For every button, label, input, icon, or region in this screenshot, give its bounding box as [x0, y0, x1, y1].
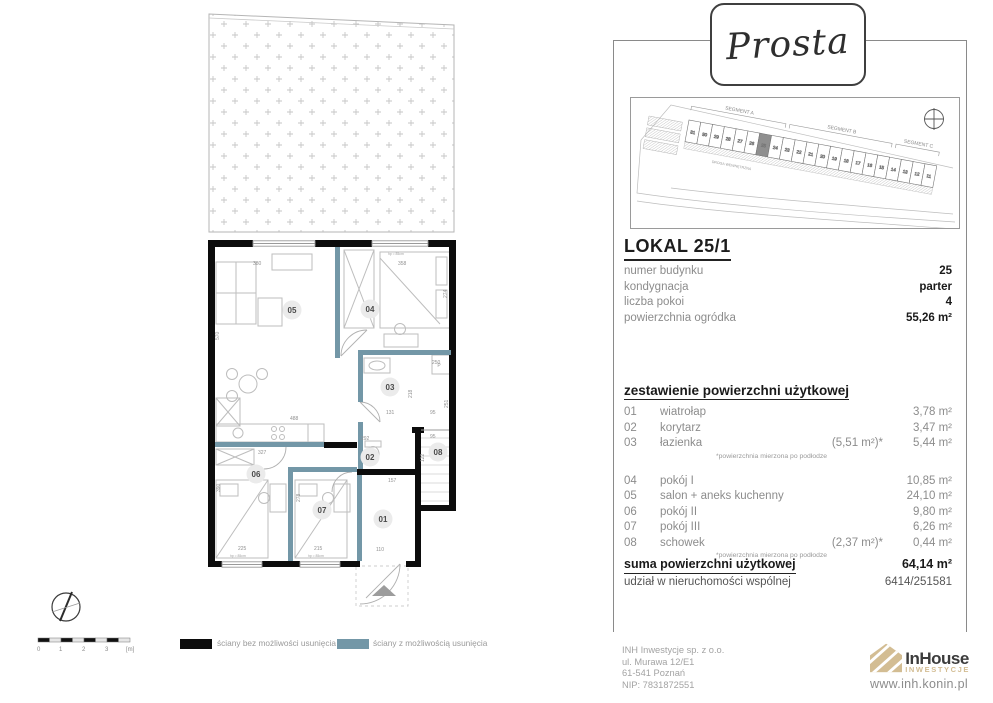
detail-row: powierzchnia ogródka 55,26 m²	[624, 311, 952, 327]
row-value: 5,44 m²	[888, 436, 952, 452]
scale-tick-0: 0	[37, 647, 41, 653]
company-line: INH Inwestycje sp. z o.o.	[622, 645, 724, 657]
sum-value: 64,14 m²	[902, 556, 952, 574]
dim-488: 488	[290, 416, 299, 422]
detail-row: numer budynku 25	[624, 264, 952, 280]
room-label-04: 04	[366, 305, 375, 314]
share-label: udział w nieruchomości wspólnej	[624, 574, 791, 591]
row-name: schowek	[660, 536, 832, 552]
row-value: 24,10 m²	[888, 489, 952, 505]
legend-removable-wall-label: ściany z możliwością usunięcia	[373, 638, 487, 648]
row-name: pokój III	[660, 520, 888, 536]
row-value: 9,80 m²	[888, 505, 952, 521]
detail-value: 25	[939, 264, 952, 280]
area-table-header: zestawienie powierzchni użytkowej	[624, 383, 849, 400]
detail-label: liczba pokoi	[624, 295, 684, 311]
table-row: 04 pokój I 10,85 m²	[624, 474, 952, 490]
dimension-labels: 380 358 570 488 327 292 157 110 225 215 …	[215, 252, 450, 558]
dim-215: 215	[314, 546, 323, 552]
sum-label: suma powierzchni użytkowej	[624, 556, 796, 574]
dim-95b: 95	[430, 434, 436, 440]
table-row: 01 wiatrołap 3,78 m²	[624, 405, 952, 421]
dim-225: 225	[238, 546, 247, 552]
dim-95a: 95	[430, 410, 436, 416]
dim-390: 390	[216, 483, 222, 492]
north-icon	[924, 108, 944, 130]
parking-area	[643, 116, 682, 155]
unit-details: numer budynku 25 kondygnacja parter licz…	[624, 264, 952, 326]
table-row: 02 korytarz 3,47 m²	[624, 421, 952, 437]
room-label-03: 03	[386, 383, 395, 392]
row-value: 3,78 m²	[888, 405, 952, 421]
logo-subtitle: INWESTYCJE	[905, 666, 970, 674]
detail-value: 55,26 m²	[906, 311, 952, 327]
row-note: (2,37 m²)*	[832, 536, 883, 552]
dim-157: 157	[388, 478, 397, 484]
table-row: 03 łazienka (5,51 m²)* 5,44 m²	[624, 436, 952, 452]
table-row: 05 salon + aneks kuchenny 24,10 m²	[624, 489, 952, 505]
table-row: 07 pokój III 6,26 m²	[624, 520, 952, 536]
company-info: INH Inwestycje sp. z o.o. ul. Murawa 12/…	[622, 645, 724, 691]
washer-label: P	[437, 363, 441, 369]
row-no: 02	[624, 421, 660, 437]
dim-358: 358	[398, 261, 407, 267]
share-value: 6414/251581	[885, 574, 952, 591]
frame-top-right	[861, 40, 967, 41]
row-name: wiatrołap	[660, 405, 888, 421]
row-value: 6,26 m²	[888, 520, 952, 536]
legend-solid-wall-label: ściany bez możliwości usunięcia	[217, 638, 336, 648]
row-no: 06	[624, 505, 660, 521]
brand-logo-text: Prosta	[725, 21, 850, 68]
dim-131: 131	[386, 410, 395, 416]
dim-251: 251	[444, 399, 450, 408]
row-name: salon + aneks kuchenny	[660, 489, 888, 505]
legend-removable-wall-swatch	[337, 639, 369, 649]
dim-110: 110	[376, 547, 384, 553]
detail-label: kondygnacja	[624, 280, 689, 296]
house-logo-icon	[870, 642, 902, 674]
row-no: 05	[624, 489, 660, 505]
dim-570: 570	[215, 331, 221, 340]
detail-row: kondygnacja parter	[624, 280, 952, 296]
detail-row: liczba pokoi 4	[624, 295, 952, 311]
legend-solid-wall-swatch	[180, 639, 212, 649]
solid-walls	[208, 240, 456, 567]
row-no: 01	[624, 405, 660, 421]
company-line: 61-541 Poznań	[622, 668, 724, 680]
room-label-01: 01	[379, 515, 388, 524]
dim-292: 292	[361, 436, 370, 442]
area-table: zestawienie powierzchni użytkowej 01 wia…	[624, 383, 952, 564]
row-value: 0,44 m²	[888, 536, 952, 552]
room-label-07: 07	[318, 506, 327, 515]
frame-left	[613, 40, 614, 632]
logo-name: InHouse	[905, 651, 970, 666]
row-no: 04	[624, 474, 660, 490]
frame-top-left	[613, 40, 711, 41]
window-sill-label: hp ≈ 85cm	[388, 252, 404, 256]
company-line: ul. Murawa 12/E1	[622, 657, 724, 669]
table-footnote: *powierzchnia mierzona po podłodze	[716, 452, 952, 461]
dim-122: 122	[420, 453, 426, 462]
share-row: udział w nieruchomości wspólnej 6414/251…	[624, 574, 952, 591]
inhouse-logo: InHouse INWESTYCJE www.inh.konin.pl	[870, 642, 970, 691]
totals-block: suma powierzchni użytkowej 64,14 m² udzi…	[624, 556, 952, 591]
dim-380: 380	[253, 261, 262, 267]
brand-logo-box: Prosta	[710, 3, 866, 86]
floor-plan: 05 04 03 02 08 06 07 01 380 358 570 488 …	[208, 240, 456, 612]
row-name: pokój I	[660, 474, 888, 490]
garden-area	[208, 8, 455, 234]
window-sill-label: hp ≈ 85cm	[230, 554, 246, 558]
row-no: 03	[624, 436, 660, 452]
detail-value: parter	[919, 280, 952, 296]
scale-tick-1: 1	[59, 647, 63, 653]
row-name: łazienka	[660, 436, 832, 452]
row-name: korytarz	[660, 421, 888, 437]
row-no: 08	[624, 536, 660, 552]
site-plan: SEGMENT A SEGMENT B SEGMENT C 31 30 29 2…	[630, 97, 960, 229]
room-label-06: 06	[252, 470, 261, 479]
row-value: 10,85 m²	[888, 474, 952, 490]
scale-tick-2: 2	[82, 647, 86, 653]
row-name: pokój II	[660, 505, 888, 521]
unit-title: LOKAL 25/1	[624, 236, 731, 261]
road-label: DROGA WEWNĘTRZNA	[711, 160, 752, 171]
dim-278: 278	[296, 493, 302, 502]
scale-tick-3: 3	[105, 647, 109, 653]
detail-value: 4	[946, 295, 952, 311]
window-sill-label: hp ≈ 85cm	[308, 554, 324, 558]
table-row: 06 pokój II 9,80 m²	[624, 505, 952, 521]
scale-bar: 0 1 2 3 [m]	[36, 634, 146, 658]
table-row: 08 schowek (2,37 m²)* 0,44 m²	[624, 536, 952, 552]
dim-274: 274	[443, 289, 449, 298]
entrance-arrow-icon	[372, 585, 396, 596]
frame-right	[966, 40, 967, 632]
sum-row: suma powierzchni użytkowej 64,14 m²	[624, 556, 952, 574]
north-compass-icon	[46, 588, 86, 628]
company-line: NIP: 7831872551	[622, 680, 724, 692]
dim-327: 327	[258, 450, 267, 456]
detail-label: powierzchnia ogródka	[624, 311, 736, 327]
website-link[interactable]: www.inh.konin.pl	[870, 677, 970, 691]
dim-218: 218	[408, 389, 414, 398]
detail-label: numer budynku	[624, 264, 703, 280]
row-no: 07	[624, 520, 660, 536]
scale-tick-m: [m]	[126, 647, 135, 653]
room-label-05: 05	[288, 306, 297, 315]
row-note: (5,51 m²)*	[832, 436, 883, 452]
room-label-02: 02	[366, 453, 375, 462]
room-label-08: 08	[434, 448, 443, 457]
row-value: 3,47 m²	[888, 421, 952, 437]
